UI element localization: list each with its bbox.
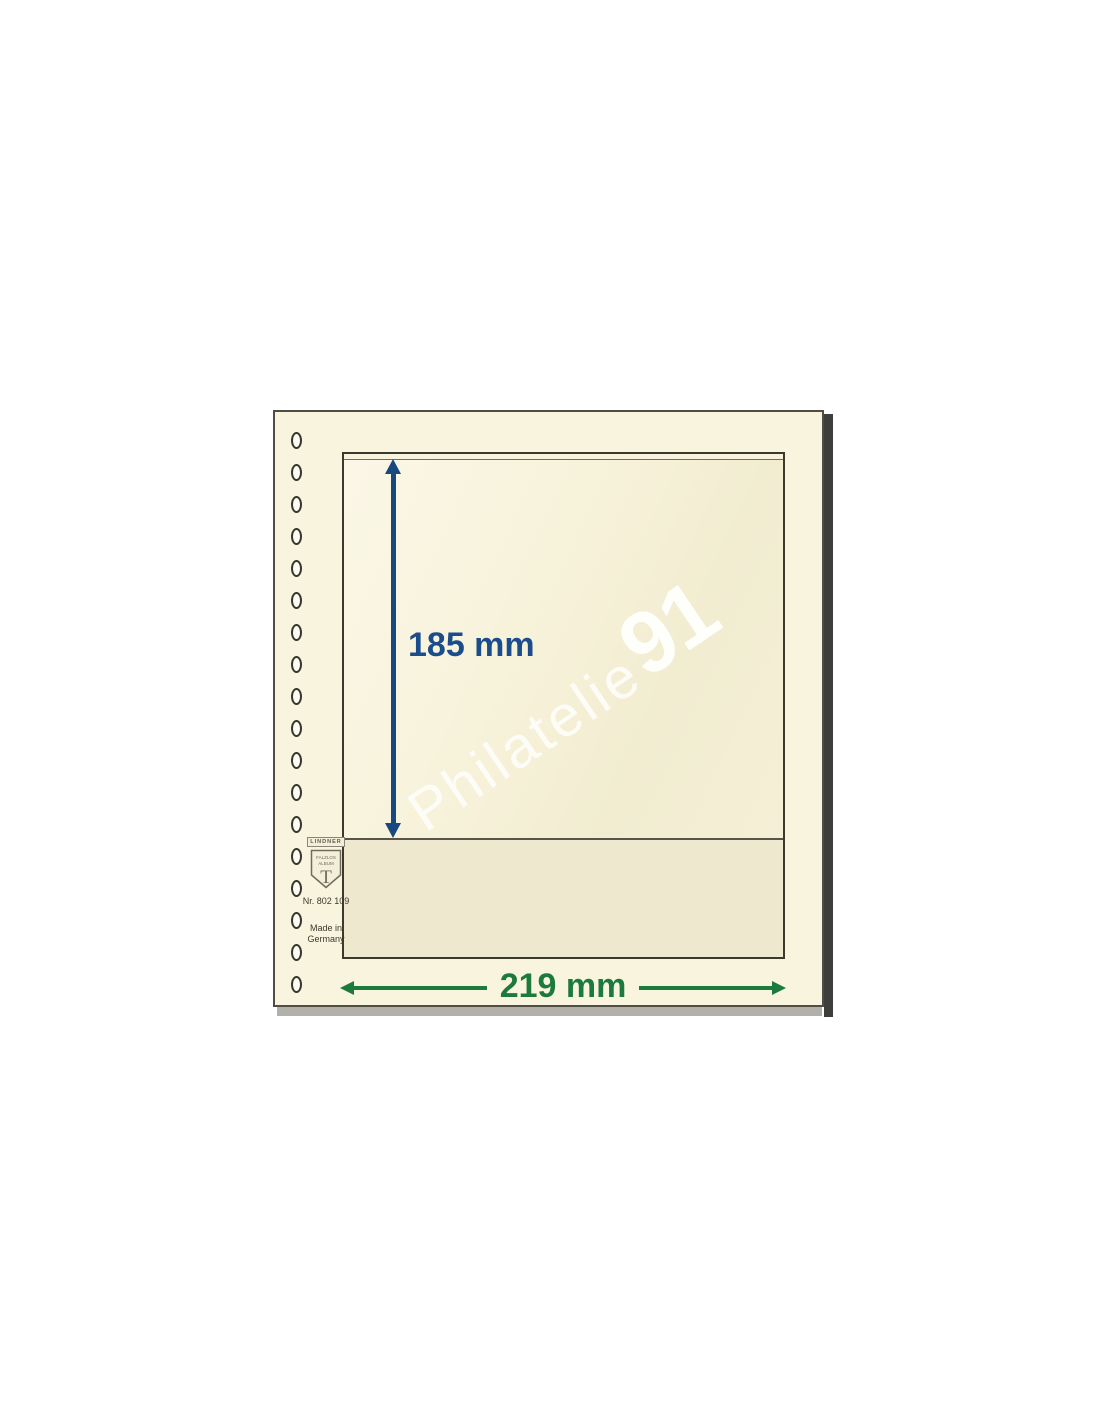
horizontal-dimension-arrow: 219 mm xyxy=(340,968,786,1008)
horizontal-arrow-line-right xyxy=(639,986,772,991)
horizontal-arrow-line-left xyxy=(354,986,487,991)
svg-text:T: T xyxy=(320,867,332,888)
punch-hole xyxy=(291,752,302,769)
punch-hole xyxy=(291,464,302,481)
punch-hole xyxy=(291,592,302,609)
brand-shield-icon: FALZLOS ALBUM T xyxy=(310,849,342,889)
arrow-down-icon xyxy=(385,823,401,838)
punch-hole xyxy=(291,944,302,961)
vertical-dimension-arrow xyxy=(385,459,401,838)
photo-shadow-bottom xyxy=(277,1007,822,1016)
brand-block: LINDNER FALZLOS ALBUM T Nr. 802 109 Made… xyxy=(301,830,351,946)
punch-hole xyxy=(291,656,302,673)
punch-hole xyxy=(291,688,302,705)
svg-text:ALBUM: ALBUM xyxy=(318,861,334,866)
arrow-up-icon xyxy=(385,459,401,474)
vertical-arrow-line xyxy=(391,474,396,823)
origin-label: Made in Germany xyxy=(301,923,351,946)
product-number: Nr. 802 109 xyxy=(301,896,351,906)
punch-hole xyxy=(291,624,302,641)
punch-hole xyxy=(291,496,302,513)
brand-logo-name: LINDNER xyxy=(307,837,344,847)
punch-hole xyxy=(291,784,302,801)
punch-hole xyxy=(291,528,302,545)
photo-shadow-right xyxy=(824,414,833,1017)
punch-hole xyxy=(291,720,302,737)
punch-hole xyxy=(291,432,302,449)
svg-text:FALZLOS: FALZLOS xyxy=(316,855,336,860)
album-page-photo: Philatelie91 185 mm 219 mm LINDNER FALZL… xyxy=(273,410,824,1007)
arrow-left-icon xyxy=(340,981,354,995)
height-dimension-label: 185 mm xyxy=(408,626,535,665)
page-lower-area xyxy=(344,838,783,957)
punch-hole xyxy=(291,976,302,993)
product-image-canvas: Philatelie91 185 mm 219 mm LINDNER FALZL… xyxy=(0,0,1100,1422)
width-dimension-label: 219 mm xyxy=(500,967,627,1006)
arrow-right-icon xyxy=(772,981,786,995)
punch-hole xyxy=(291,560,302,577)
